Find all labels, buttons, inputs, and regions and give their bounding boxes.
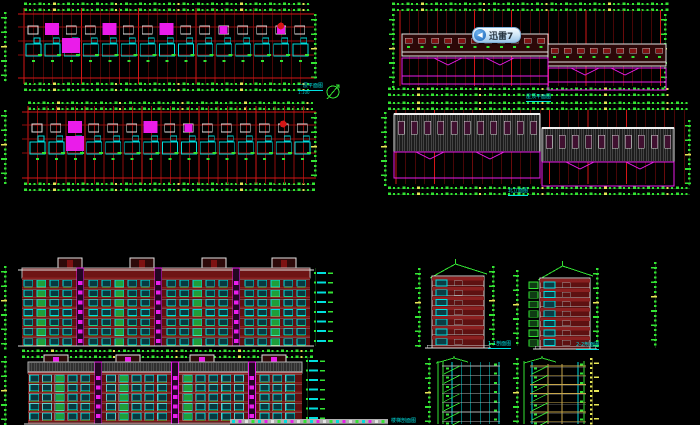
drawing-title-roof-plan: 屋顶平面图 [526, 95, 551, 102]
drawing-title-stair-section: 楼梯剖面图 [391, 419, 416, 425]
drawing-scale-text: 1:100 [298, 91, 323, 96]
drawing-title-rear-elevation: 北立面图 [508, 189, 528, 196]
drawing-title-section-1: 1-1剖面图 [488, 342, 511, 349]
cad-viewport: 一层平面图 1:100 屋顶平面图 北立面图 1-1剖面图 2-2剖面图 楼梯剖… [0, 0, 700, 425]
drawing-title-section-2: 2-2剖面图 [576, 343, 599, 350]
xunlei-watermark-label: 迅雷7 [489, 29, 513, 42]
xunlei-arrow-icon: ◀ [474, 29, 486, 41]
xunlei-watermark-button[interactable]: ◀ 迅雷7 [472, 27, 521, 43]
drawing-title-floor-plan: 一层平面图 1:100 [298, 84, 323, 95]
cad-drawing-sheet [0, 0, 700, 425]
